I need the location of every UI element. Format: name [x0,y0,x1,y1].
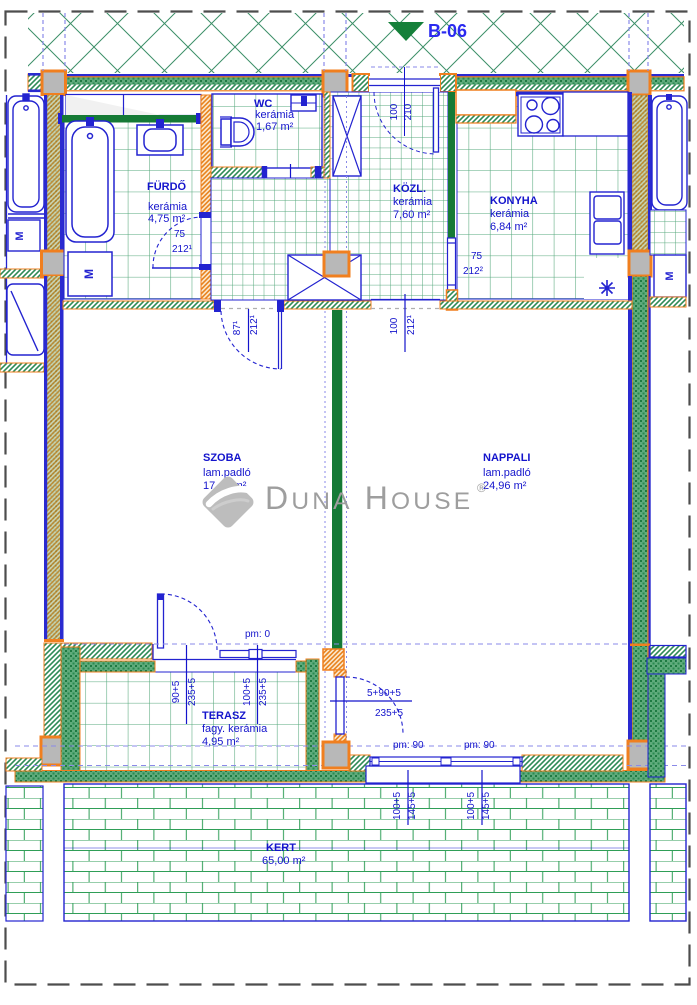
svg-text:75: 75 [174,229,186,240]
svg-text:100: 100 [389,317,400,334]
svg-text:212¹: 212¹ [406,314,417,335]
svg-text:fagy. kerámia: fagy. kerámia [202,723,268,735]
svg-text:kerámia: kerámia [255,109,295,121]
svg-text:1,67 m²: 1,67 m² [256,121,294,133]
svg-text:212¹: 212¹ [172,244,193,255]
svg-text:100+5: 100+5 [466,792,477,821]
svg-text:kerámia: kerámia [490,208,530,220]
svg-text:65,00 m²: 65,00 m² [262,855,306,867]
svg-text:212²: 212² [463,266,484,277]
svg-text:145+5: 145+5 [481,792,492,821]
svg-text:pm: 90: pm: 90 [393,740,424,751]
svg-text:100+5: 100+5 [242,678,253,707]
svg-text:®: ® [477,481,486,495]
svg-text:212¹: 212¹ [249,314,260,335]
svg-text:KERT: KERT [266,842,296,854]
svg-text:pm: 90: pm: 90 [464,740,495,751]
svg-text:145+5: 145+5 [407,792,418,821]
svg-text:87¹: 87¹ [232,320,243,335]
svg-text:75: 75 [471,251,483,262]
svg-text:kerámia: kerámia [393,196,433,208]
svg-text:KONYHA: KONYHA [490,195,538,207]
svg-text:pm: 0: pm: 0 [245,629,270,640]
svg-text:6,84 m²: 6,84 m² [490,221,528,233]
svg-text:5+90+5: 5+90+5 [367,688,401,699]
svg-text:B-06: B-06 [428,21,467,41]
svg-text:7,60 m²: 7,60 m² [393,209,431,221]
svg-text:kerámia: kerámia [148,201,188,213]
svg-text:M: M [14,231,26,240]
svg-text:235+5: 235+5 [258,678,269,707]
svg-text:SZOBA: SZOBA [203,452,242,464]
svg-text:24,96 m²: 24,96 m² [483,480,527,492]
svg-text:KÖZL.: KÖZL. [393,182,426,195]
svg-text:NAPPALI: NAPPALI [483,452,530,464]
svg-text:235+5: 235+5 [187,678,198,707]
svg-text:lam.padló: lam.padló [483,467,531,479]
svg-text:TERASZ: TERASZ [202,710,246,722]
svg-text:FÜRDŐ: FÜRDŐ [147,180,187,193]
svg-text:M: M [82,269,96,279]
svg-text:90+5: 90+5 [171,680,182,703]
svg-text:100+5: 100+5 [392,792,403,821]
svg-text:235+5: 235+5 [375,708,404,719]
svg-text:100: 100 [389,103,400,120]
svg-text:4,75 m²: 4,75 m² [148,213,186,225]
svg-text:M: M [664,271,676,280]
